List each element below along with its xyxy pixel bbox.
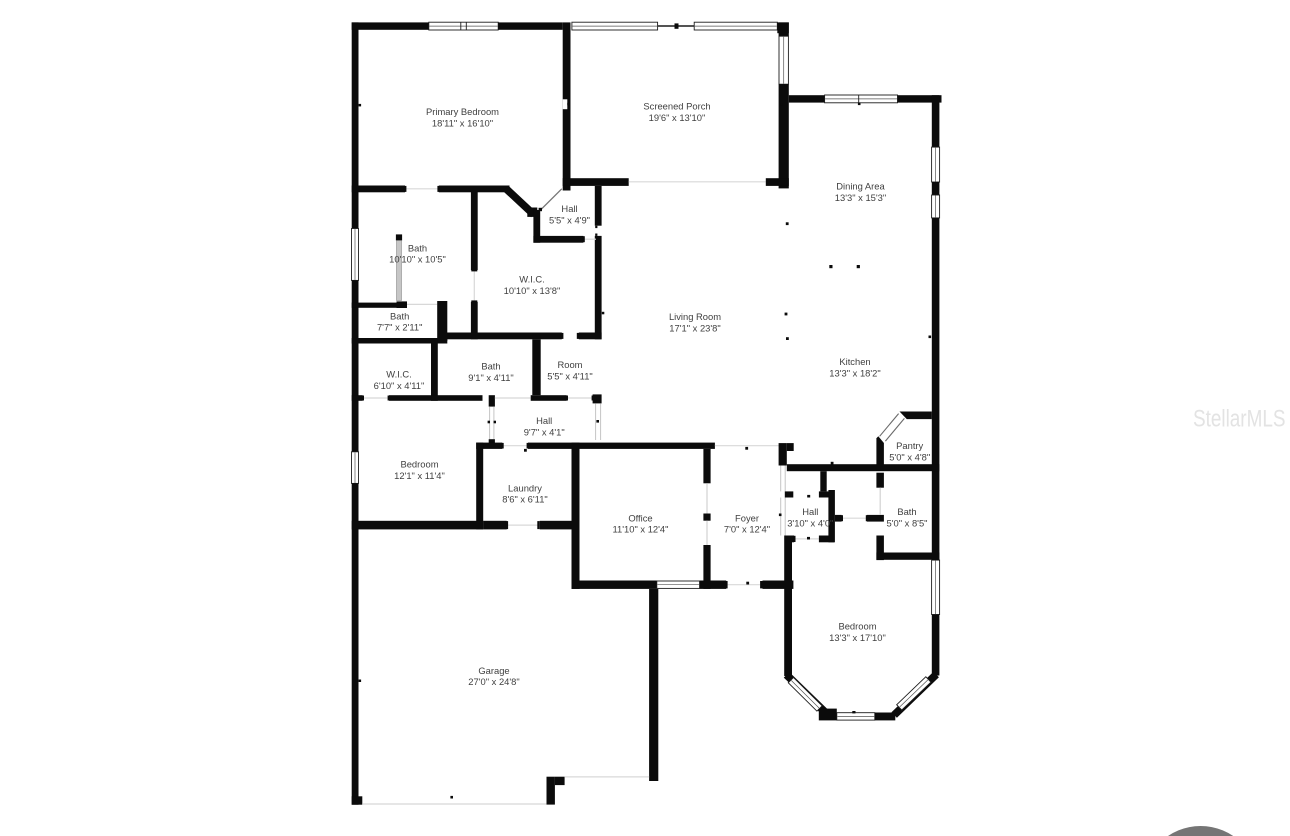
svg-text:17'1" x 23'8": 17'1" x 23'8"	[669, 322, 720, 333]
svg-text:9'7" x 4'1": 9'7" x 4'1"	[524, 426, 565, 437]
svg-text:Bath: Bath	[408, 242, 427, 253]
svg-text:Hall: Hall	[536, 415, 552, 426]
svg-text:StellarMLS: StellarMLS	[1193, 406, 1286, 433]
svg-text:13'3" x 18'2": 13'3" x 18'2"	[829, 367, 880, 378]
svg-text:18'11" x 16'10": 18'11" x 16'10"	[432, 117, 493, 128]
svg-text:Garage: Garage	[478, 665, 509, 676]
svg-text:Screened Porch: Screened Porch	[643, 101, 710, 112]
svg-text:8'6" x 6'11": 8'6" x 6'11"	[502, 494, 548, 505]
svg-text:10'10" x 13'8": 10'10" x 13'8"	[504, 285, 561, 296]
svg-text:Room: Room	[557, 359, 582, 370]
svg-text:Kitchen: Kitchen	[839, 356, 870, 367]
svg-text:Foyer: Foyer	[735, 512, 759, 523]
svg-text:11'10" x 12'4": 11'10" x 12'4"	[613, 524, 669, 535]
svg-text:19'6" x 13'10": 19'6" x 13'10"	[649, 112, 706, 123]
svg-text:W.I.C.: W.I.C.	[386, 369, 412, 380]
svg-text:Hall: Hall	[561, 203, 577, 214]
svg-text:6'10" x 4'11": 6'10" x 4'11"	[374, 380, 425, 391]
svg-text:3'10" x 4'0": 3'10" x 4'0"	[787, 518, 833, 529]
svg-text:Pantry: Pantry	[896, 440, 923, 451]
svg-text:9'1" x 4'11": 9'1" x 4'11"	[468, 372, 514, 383]
svg-text:Bath: Bath	[481, 361, 500, 372]
svg-text:Dining Area: Dining Area	[836, 181, 885, 192]
svg-text:13'3" x 17'10": 13'3" x 17'10"	[829, 632, 886, 643]
svg-text:Bath: Bath	[390, 310, 409, 321]
svg-text:Living Room: Living Room	[669, 311, 721, 322]
svg-text:10'10" x 10'5": 10'10" x 10'5"	[389, 254, 446, 265]
svg-text:13'3" x 15'3": 13'3" x 15'3"	[835, 192, 886, 203]
svg-text:Hall: Hall	[802, 506, 818, 517]
svg-text:5'5" x 4'11": 5'5" x 4'11"	[547, 371, 593, 382]
svg-text:W.I.C.: W.I.C.	[519, 274, 545, 285]
svg-text:Laundry: Laundry	[508, 482, 542, 493]
svg-text:5'0" x 8'5": 5'0" x 8'5"	[887, 518, 928, 529]
svg-text:27'0" x 24'8": 27'0" x 24'8"	[468, 676, 519, 687]
svg-text:7'0" x 12'4": 7'0" x 12'4"	[724, 524, 770, 535]
svg-text:Office: Office	[628, 512, 652, 523]
svg-text:5'0" x 4'8": 5'0" x 4'8"	[889, 452, 930, 463]
svg-text:12'1" x 11'4": 12'1" x 11'4"	[394, 470, 445, 481]
svg-text:Bedroom: Bedroom	[400, 459, 438, 470]
svg-text:5'5" x 4'9": 5'5" x 4'9"	[549, 215, 590, 226]
svg-text:7'7" x 2'11": 7'7" x 2'11"	[377, 322, 423, 333]
svg-text:Bath: Bath	[897, 506, 916, 517]
svg-text:Bedroom: Bedroom	[838, 621, 876, 632]
svg-text:Primary Bedroom: Primary Bedroom	[426, 106, 499, 117]
